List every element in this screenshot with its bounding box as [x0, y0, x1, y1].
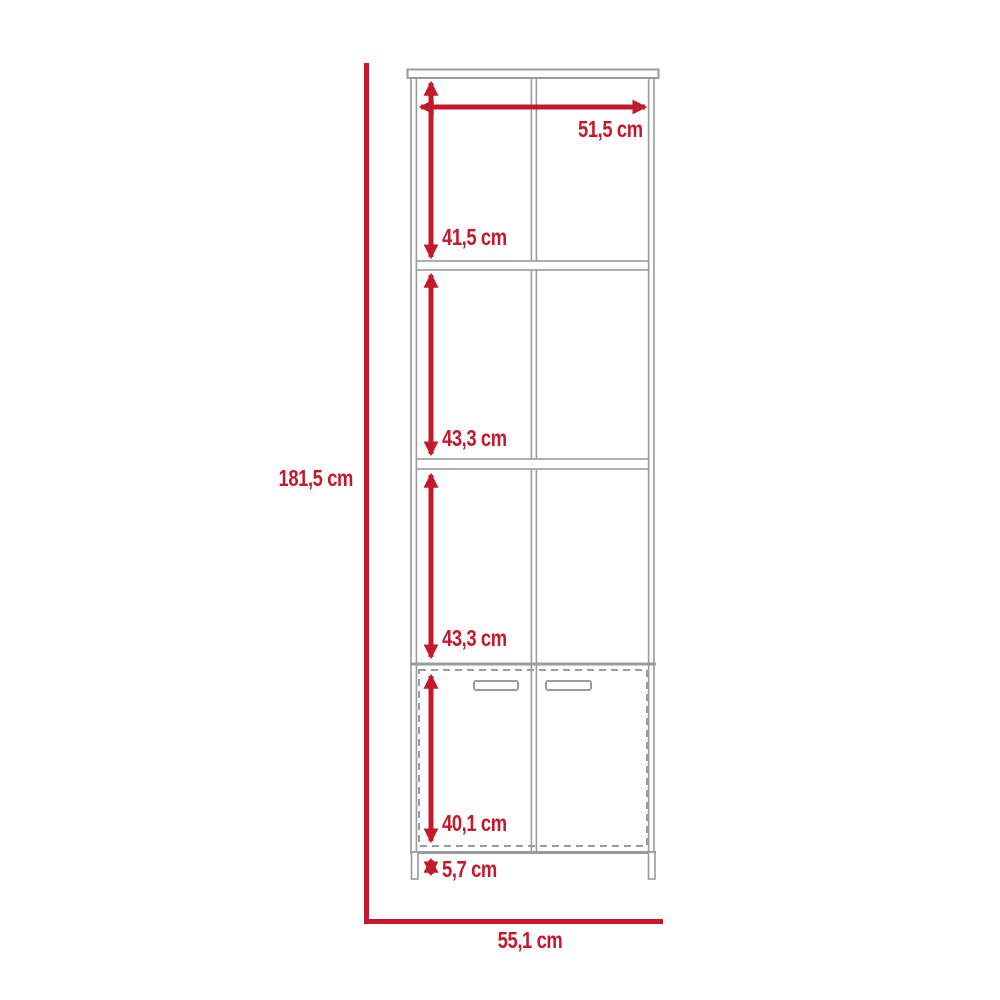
label-compartment-middle: 43,3 cm — [442, 426, 507, 451]
label-door-section: 40,1 cm — [442, 811, 507, 836]
cabinet-top-panel — [408, 70, 659, 79]
label-legs: 5,7 cm — [442, 857, 497, 882]
label-compartment-top: 41,5 cm — [442, 225, 507, 250]
dimension-labels: 181,5 cm 51,5 cm 41,5 cm 43,3 cm 43,3 cm… — [279, 117, 643, 953]
shelf-2 — [416, 459, 648, 469]
diagram-canvas: 181,5 cm 51,5 cm 41,5 cm 43,3 cm 43,3 cm… — [0, 0, 1000, 1000]
door-handle-right — [546, 681, 591, 690]
label-overall-height: 181,5 cm — [279, 466, 353, 491]
cabinet-right-side-panel — [649, 78, 654, 852]
furniture-dimension-diagram: 181,5 cm 51,5 cm 41,5 cm 43,3 cm 43,3 cm… — [0, 0, 1000, 1000]
cabinet-left-side-panel — [411, 78, 416, 852]
leg-left — [412, 852, 419, 879]
label-compartment-lower: 43,3 cm — [442, 626, 507, 651]
label-overall-width: 55,1 cm — [498, 928, 563, 953]
leg-right — [649, 852, 656, 879]
door-handle-left — [474, 681, 518, 690]
shelf-1 — [416, 261, 648, 270]
label-interior-width: 51,5 cm — [578, 117, 643, 142]
cabinet-outline — [408, 70, 659, 880]
